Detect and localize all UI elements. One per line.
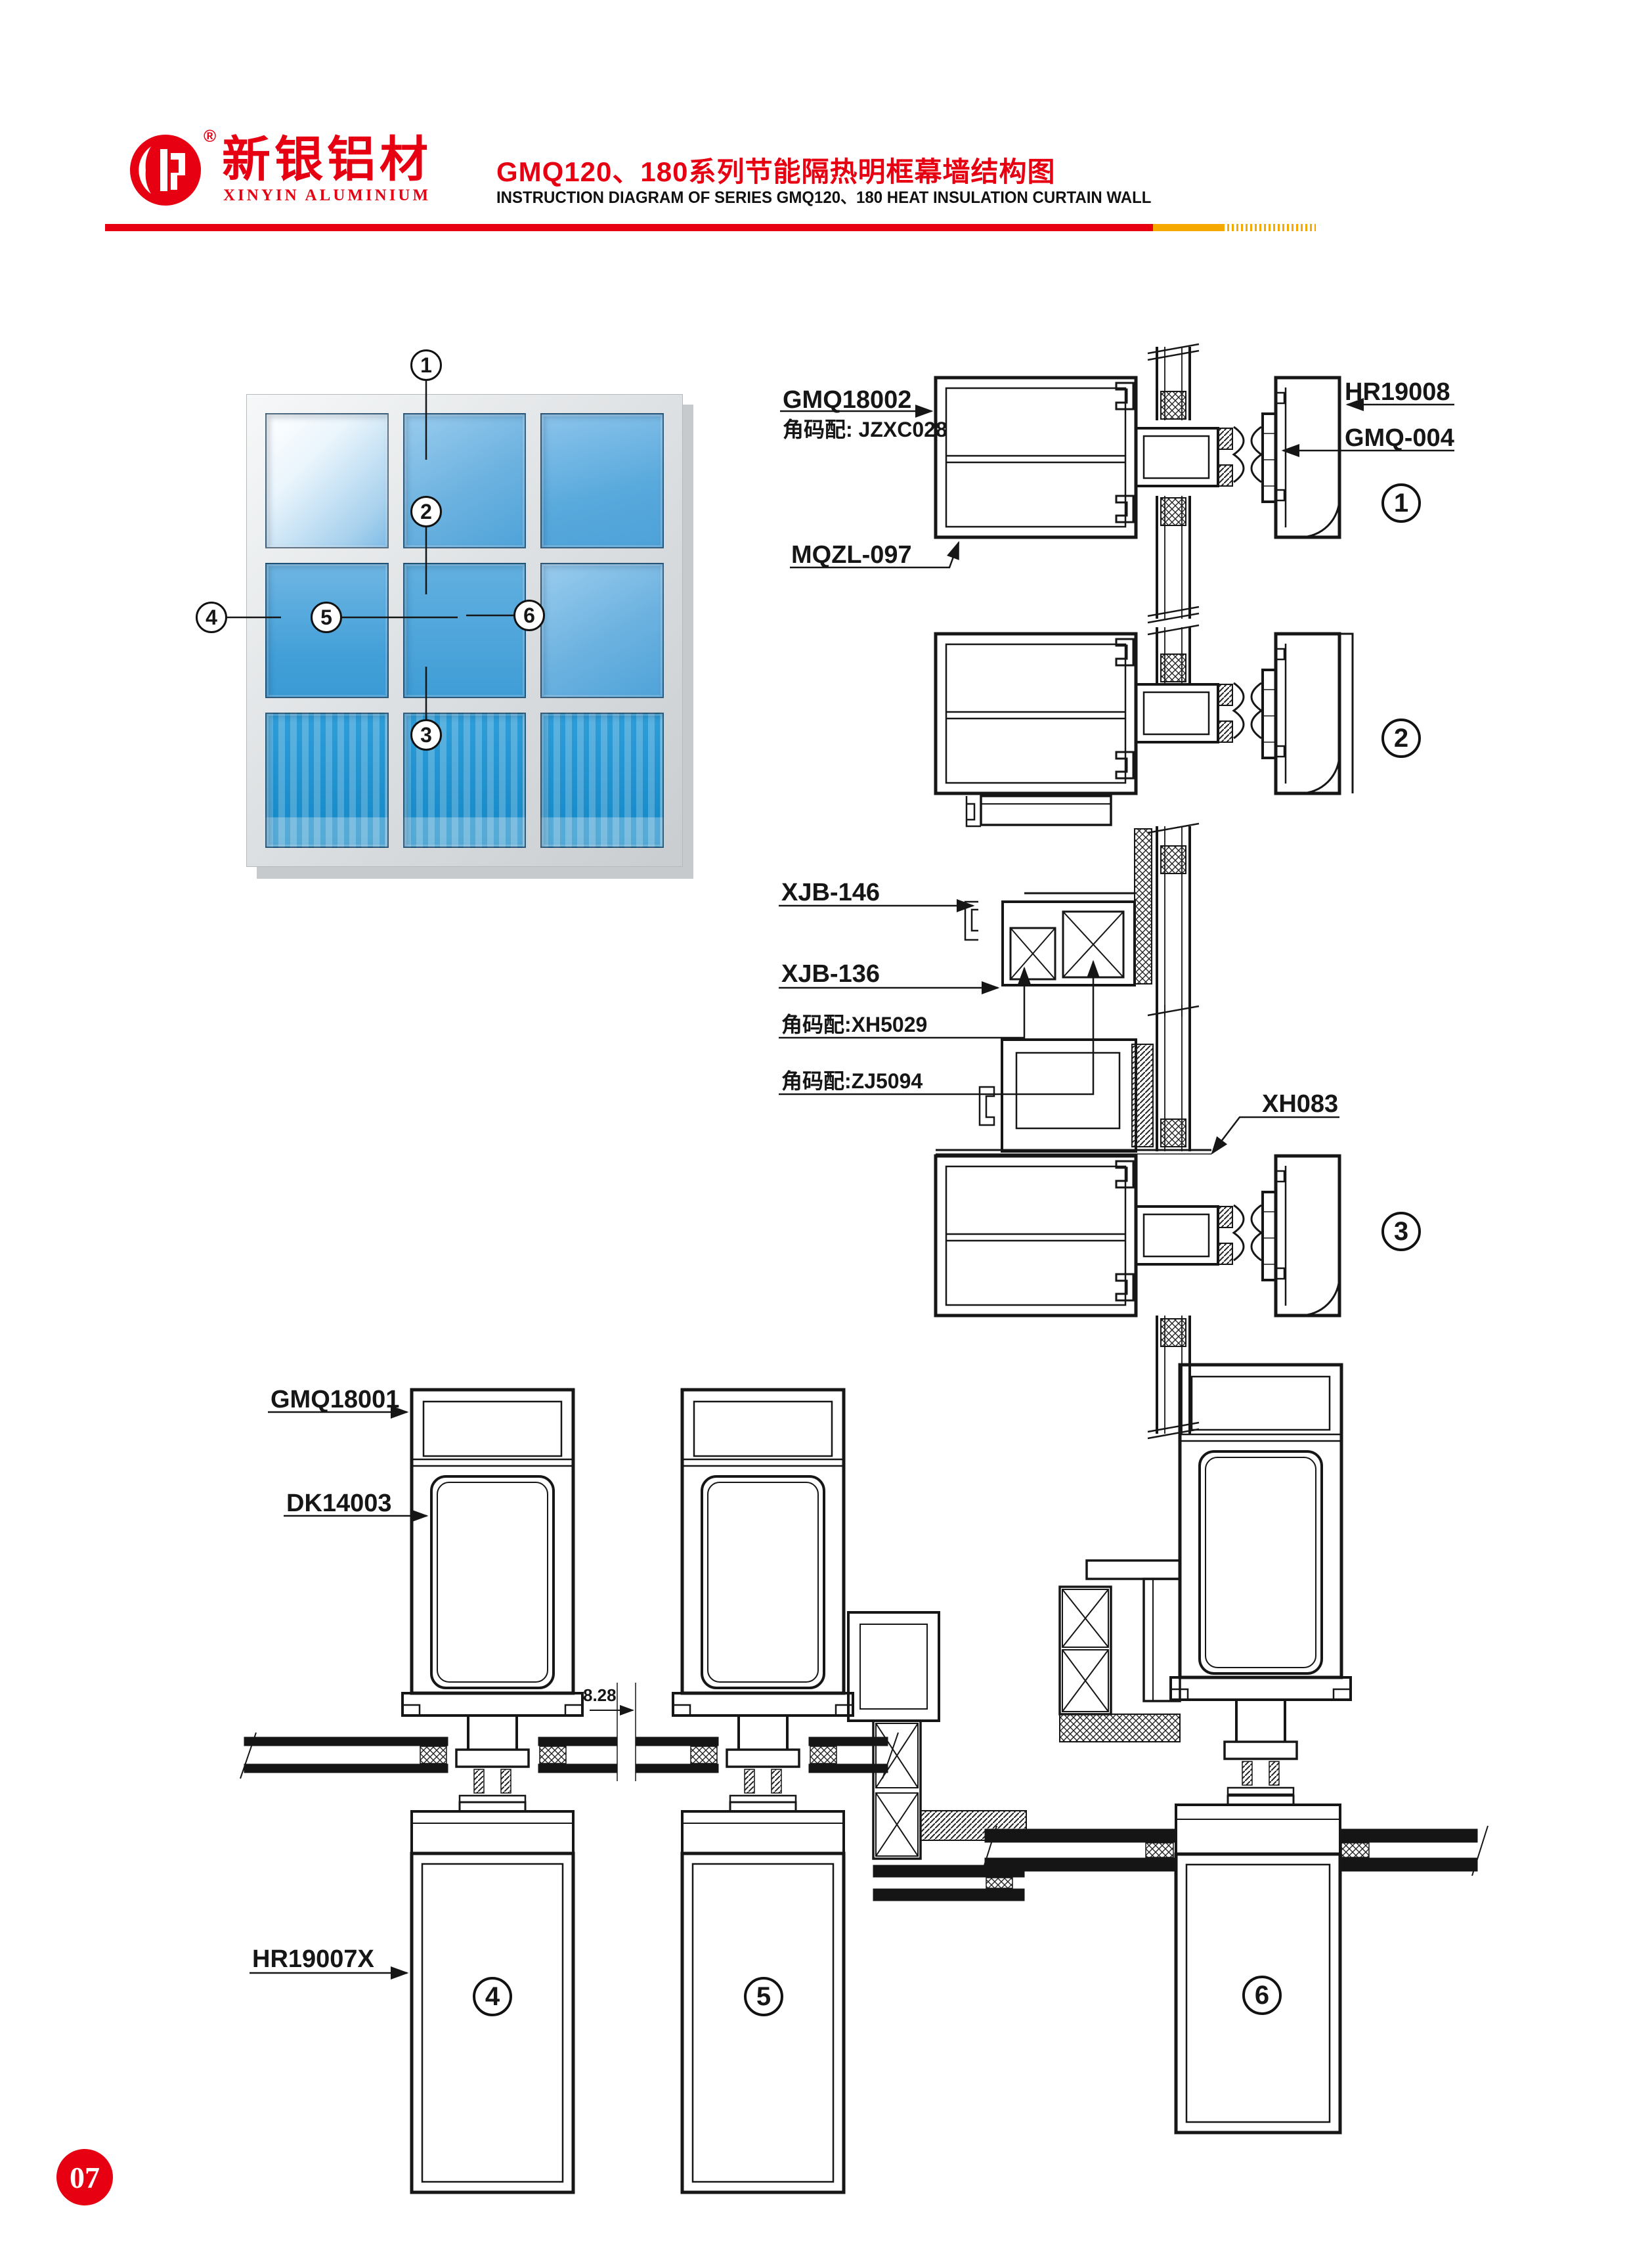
detail-2-number: 2 [1394,724,1408,753]
callout-5: 5 [311,602,342,633]
label-dim-828: 8.28 [583,1685,617,1706]
detail-circle-4: 4 [473,1977,512,2016]
label-xh083: XH083 [1262,1092,1338,1117]
label-hr19007x: HR19007X [252,1947,374,1972]
detail-circle-6: 6 [1242,1976,1282,2015]
label-xjb136: XJB-136 [781,962,880,986]
label-dk14003: DK14003 [286,1491,392,1516]
catalog-page: ® 新银铝材 XINYIN ALUMINIUM GMQ120、180系列节能隔热… [0,0,1652,2258]
callout-4: 4 [196,602,227,633]
page-number: 07 [70,2160,100,2195]
callout-2-number: 2 [420,500,432,524]
detail-circle-3: 3 [1381,1212,1421,1251]
callout-1-number: 1 [420,353,432,378]
label-gmq18001: GMQ18001 [271,1387,399,1412]
callout-6: 6 [513,600,545,631]
label-mqzl097: MQZL-097 [791,542,912,567]
callout-5-number: 5 [320,606,332,630]
callout-3: 3 [410,719,442,751]
callout-1: 1 [410,349,442,381]
technical-linework [0,0,1652,2258]
label-gmq18002: GMQ18002 [783,387,911,412]
detail-circle-5: 5 [744,1977,783,2016]
detail-5-number: 5 [756,1982,771,2012]
detail-circle-1: 1 [1381,483,1421,523]
callout-4-number: 4 [206,606,217,630]
callout-3-number: 3 [420,723,432,747]
label-jzxc028: 角码配: JZXC028 [783,419,947,440]
label-xjb146: XJB-146 [781,880,880,905]
label-hr19008: HR19008 [1345,380,1450,405]
page-number-badge: 07 [56,2149,113,2205]
label-zj5094: 角码配:ZJ5094 [781,1071,923,1092]
detail-6-number: 6 [1255,1981,1269,2010]
label-gmq004: GMQ-004 [1345,426,1454,451]
callout-2: 2 [410,496,442,527]
detail-4-number: 4 [485,1982,500,2012]
callout-6-number: 6 [523,604,535,628]
detail-1-number: 1 [1394,489,1408,518]
label-xh5029: 角码配:XH5029 [781,1014,927,1035]
detail-circle-2: 2 [1381,719,1421,758]
detail-3-number: 3 [1394,1217,1408,1247]
